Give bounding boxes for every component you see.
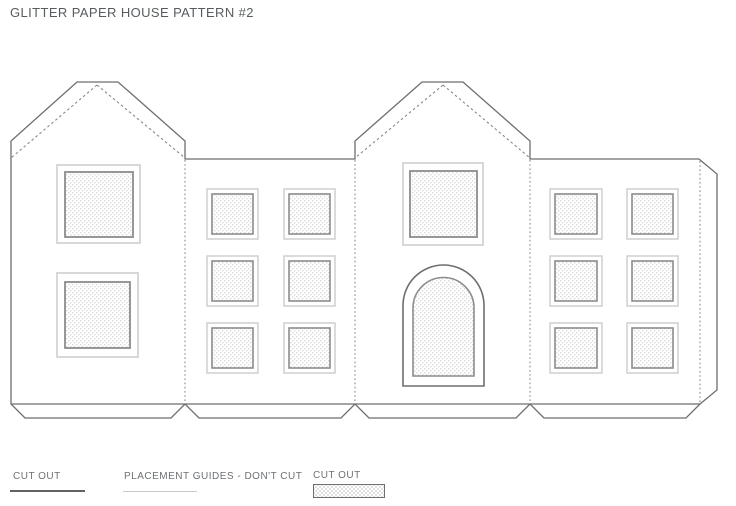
window-large	[57, 273, 138, 357]
window-small	[207, 256, 258, 306]
window-small	[627, 323, 678, 373]
legend-hatched-swatch-sample	[313, 484, 385, 498]
window-small	[550, 323, 602, 373]
window-large	[57, 165, 140, 243]
window-large	[403, 163, 483, 245]
window-small	[550, 189, 602, 239]
legend-solid-line-sample	[10, 490, 85, 492]
window-small	[284, 189, 335, 239]
window-small	[284, 256, 335, 306]
window-small	[207, 323, 258, 373]
legend-label-cut-out-area: CUT OUT	[313, 470, 361, 481]
template-outline	[11, 82, 717, 418]
door-arch	[403, 265, 484, 386]
house-pattern-diagram	[0, 0, 736, 506]
legend-label-cut-out-line: CUT OUT	[13, 471, 61, 482]
window-small	[550, 256, 602, 306]
window-small	[627, 256, 678, 306]
window-small	[284, 323, 335, 373]
pattern-sheet: { "title": "GLITTER PAPER HOUSE PATTERN …	[0, 0, 736, 506]
window-small	[207, 189, 258, 239]
window-small	[627, 189, 678, 239]
legend-light-line-sample	[123, 491, 197, 492]
legend-label-placement-guides: PLACEMENT GUIDES - DON'T CUT	[124, 471, 302, 482]
